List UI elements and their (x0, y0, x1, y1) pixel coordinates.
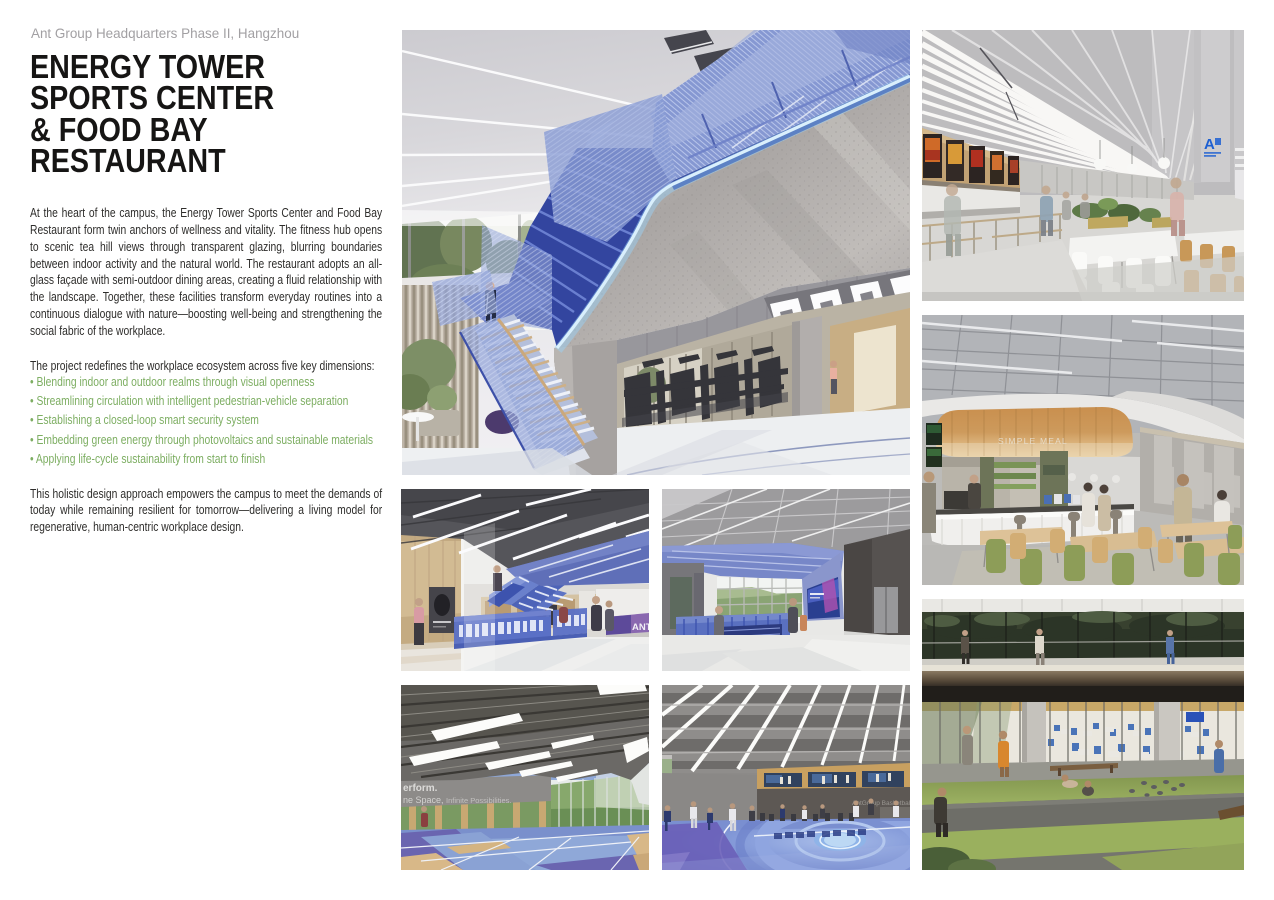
svg-text:ANT: ANT (632, 622, 649, 633)
svg-text:ne Space, Infinite Possibiliti: ne Space, Infinite Possibilities. (403, 795, 511, 805)
svg-text:SIMPLE MEAL: SIMPLE MEAL (998, 436, 1068, 446)
svg-text:AntGroup Basketball: AntGroup Basketball (852, 800, 910, 807)
svg-text:erform.: erform. (403, 783, 438, 794)
svg-text:A: A (1204, 136, 1215, 153)
